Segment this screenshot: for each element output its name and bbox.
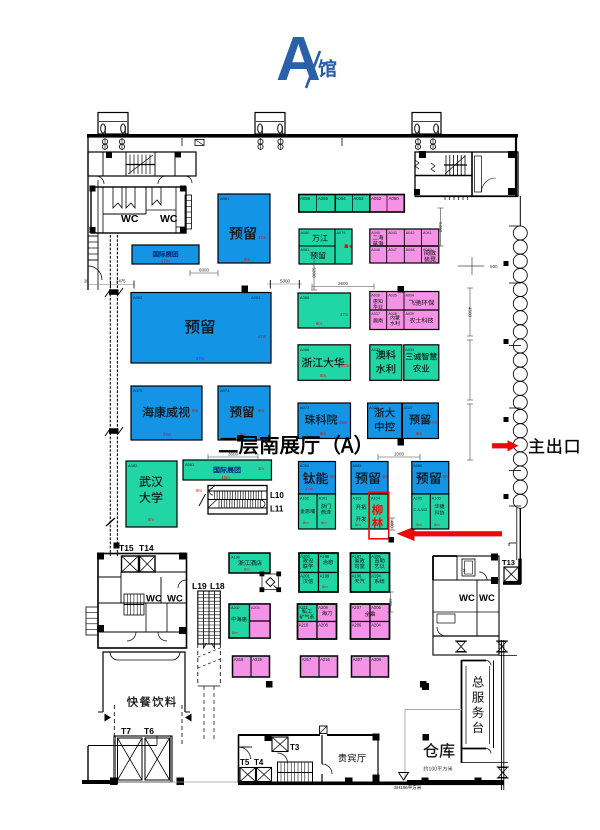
svg-text:T5: T5 xyxy=(240,758,250,767)
svg-text:9m: 9m xyxy=(192,408,198,413)
svg-text:27m: 27m xyxy=(196,356,205,361)
svg-text:A105: A105 xyxy=(413,497,422,501)
svg-text:45m: 45m xyxy=(221,475,230,480)
svg-text:A031: A031 xyxy=(405,348,414,352)
svg-text:9m: 9m xyxy=(148,517,154,522)
svg-text:8m: 8m xyxy=(321,520,327,525)
svg-text:A106: A106 xyxy=(432,497,441,501)
svg-text:5m: 5m xyxy=(443,474,449,479)
svg-text:A034: A034 xyxy=(406,293,415,297)
svg-text:A039: A039 xyxy=(406,312,415,316)
svg-text:A211: A211 xyxy=(299,605,309,610)
svg-text:A102: A102 xyxy=(300,497,309,501)
svg-text:9m: 9m xyxy=(320,431,326,436)
svg-text:A307: A307 xyxy=(353,657,363,662)
svg-text:4500: 4500 xyxy=(468,307,473,318)
svg-text:6000: 6000 xyxy=(199,268,210,273)
svg-text:A063: A063 xyxy=(251,295,261,300)
svg-text:T3: T3 xyxy=(290,743,300,752)
svg-text:A316: A316 xyxy=(320,657,330,662)
svg-text:A080: A080 xyxy=(301,231,310,235)
svg-text:A206: A206 xyxy=(352,622,362,627)
svg-text:A055: A055 xyxy=(318,196,329,201)
svg-text:A200: A200 xyxy=(300,554,310,559)
svg-text:A083: A083 xyxy=(185,462,195,467)
svg-text:A041: A041 xyxy=(423,231,432,235)
svg-text:T6: T6 xyxy=(144,726,154,736)
svg-text:A036: A036 xyxy=(371,293,380,297)
svg-text:A205: A205 xyxy=(371,605,381,610)
svg-text:2475: 2475 xyxy=(116,279,126,284)
svg-text:A074: A074 xyxy=(220,388,230,393)
svg-text:A052: A052 xyxy=(371,196,382,201)
svg-text:L19: L19 xyxy=(192,581,207,591)
svg-text:9m: 9m xyxy=(416,431,422,436)
svg-text:WC: WC xyxy=(167,594,183,605)
svg-text:8m: 8m xyxy=(303,520,309,525)
svg-text:A319: A319 xyxy=(252,657,262,662)
svg-text:A317: A317 xyxy=(302,657,312,662)
svg-text:x: x xyxy=(463,568,466,574)
svg-text:5300: 5300 xyxy=(438,222,443,233)
svg-text:8m: 8m xyxy=(232,630,238,635)
svg-text:A046: A046 xyxy=(371,248,380,252)
svg-text:A035: A035 xyxy=(388,293,397,297)
svg-text:T14: T14 xyxy=(139,543,154,553)
svg-text:47m: 47m xyxy=(341,363,350,368)
svg-text:A038: A038 xyxy=(388,312,397,316)
svg-text:500: 500 xyxy=(490,264,498,269)
svg-text:WC: WC xyxy=(479,593,495,604)
svg-text:400: 400 xyxy=(388,598,393,606)
svg-text:A203: A203 xyxy=(251,606,260,610)
svg-text:A196: A196 xyxy=(352,573,362,578)
svg-text:5300: 5300 xyxy=(312,267,317,278)
svg-text:3600: 3600 xyxy=(228,452,239,457)
svg-text:A054: A054 xyxy=(336,196,347,201)
svg-text:A066: A066 xyxy=(300,347,310,352)
svg-text:8m: 8m xyxy=(320,373,326,378)
svg-text:A: A xyxy=(276,25,321,94)
svg-text:T15: T15 xyxy=(119,543,134,553)
svg-text:8m: 8m xyxy=(355,522,361,527)
svg-text:9m: 9m xyxy=(196,488,202,493)
svg-text:A032: A032 xyxy=(371,348,380,352)
svg-text:WC: WC xyxy=(121,213,139,225)
svg-text:A056: A056 xyxy=(300,196,311,201)
svg-text:A049: A049 xyxy=(423,248,432,252)
svg-text:A043: A043 xyxy=(388,231,397,235)
svg-text:20: 20 xyxy=(84,279,89,284)
svg-text:47m: 47m xyxy=(429,420,438,425)
svg-text:A075: A075 xyxy=(133,388,143,393)
svg-text:72m: 72m xyxy=(163,432,172,437)
svg-text:T4: T4 xyxy=(254,758,264,767)
svg-text:8m: 8m xyxy=(316,321,322,326)
svg-text:A194: A194 xyxy=(371,573,381,578)
svg-text:WC: WC xyxy=(146,594,162,605)
svg-text:A209: A209 xyxy=(318,605,328,610)
svg-text:8m: 8m xyxy=(434,522,440,527)
svg-text:A062: A062 xyxy=(133,295,143,300)
svg-text:A045: A045 xyxy=(371,231,380,235)
svg-text:L18: L18 xyxy=(210,581,225,591)
svg-text:47m: 47m xyxy=(258,235,267,240)
svg-text:A050: A050 xyxy=(389,196,400,201)
svg-text:8m: 8m xyxy=(322,584,328,589)
svg-text:9m: 9m xyxy=(258,408,264,413)
svg-text:A195: A195 xyxy=(371,554,381,559)
svg-text:5m: 5m xyxy=(330,474,336,479)
svg-text:WC: WC xyxy=(459,593,475,604)
svg-text:3m: 3m xyxy=(258,466,264,471)
svg-text:3600: 3600 xyxy=(338,281,349,286)
svg-text:A042: A042 xyxy=(406,231,415,235)
svg-text:T13: T13 xyxy=(502,558,515,567)
svg-text:5300: 5300 xyxy=(280,279,291,284)
svg-text:400: 400 xyxy=(390,520,395,528)
svg-text:A103: A103 xyxy=(353,497,362,501)
svg-text:5m: 5m xyxy=(382,474,388,479)
svg-text:17m: 17m xyxy=(305,486,313,491)
svg-text:A210: A210 xyxy=(299,622,309,627)
svg-text:A199: A199 xyxy=(320,573,330,578)
svg-text:17m: 17m xyxy=(161,259,170,264)
svg-text:A207: A207 xyxy=(352,605,362,610)
svg-text:A053: A053 xyxy=(353,196,364,201)
svg-text:47m: 47m xyxy=(258,334,267,339)
svg-text:8m: 8m xyxy=(416,522,422,527)
svg-text:A190: A190 xyxy=(231,556,240,560)
svg-text:A086: A086 xyxy=(413,464,422,468)
svg-text:A104: A104 xyxy=(371,497,380,501)
svg-text:A048: A048 xyxy=(406,248,415,252)
svg-text:C A-W2: C A-W2 xyxy=(414,507,429,512)
svg-text:A204: A204 xyxy=(371,622,381,627)
svg-text:A037: A037 xyxy=(371,312,380,316)
svg-text:A208: A208 xyxy=(318,622,328,627)
svg-text:WC: WC xyxy=(160,213,178,225)
svg-text:A079: A079 xyxy=(337,231,346,235)
svg-text:A047: A047 xyxy=(388,248,397,252)
svg-text:45m: 45m xyxy=(339,420,348,425)
svg-text:A073: A073 xyxy=(300,405,310,410)
svg-text:A061: A061 xyxy=(220,196,230,201)
svg-text:L11: L11 xyxy=(270,505,284,514)
svg-text:A308: A308 xyxy=(371,657,381,662)
svg-text:1000: 1000 xyxy=(394,452,405,457)
svg-text:SH106平方米: SH106平方米 xyxy=(394,784,422,791)
svg-text:8m: 8m xyxy=(244,257,250,262)
svg-text:A027: A027 xyxy=(404,406,413,410)
svg-text:A085: A085 xyxy=(353,464,362,468)
svg-text:A198: A198 xyxy=(320,554,330,559)
svg-text:8m: 8m xyxy=(244,567,250,572)
svg-text:A081: A081 xyxy=(301,248,310,252)
svg-text:A202: A202 xyxy=(231,606,240,610)
svg-text:A065: A065 xyxy=(300,295,310,300)
svg-text:A084: A084 xyxy=(300,464,309,468)
svg-text:A318: A318 xyxy=(234,657,244,662)
svg-text:A101: A101 xyxy=(319,497,328,501)
svg-text:A082: A082 xyxy=(128,463,138,468)
svg-text:A201: A201 xyxy=(300,573,310,578)
svg-text:L10: L10 xyxy=(270,491,284,500)
svg-text:47m: 47m xyxy=(340,312,349,317)
svg-text:T7: T7 xyxy=(121,726,131,736)
